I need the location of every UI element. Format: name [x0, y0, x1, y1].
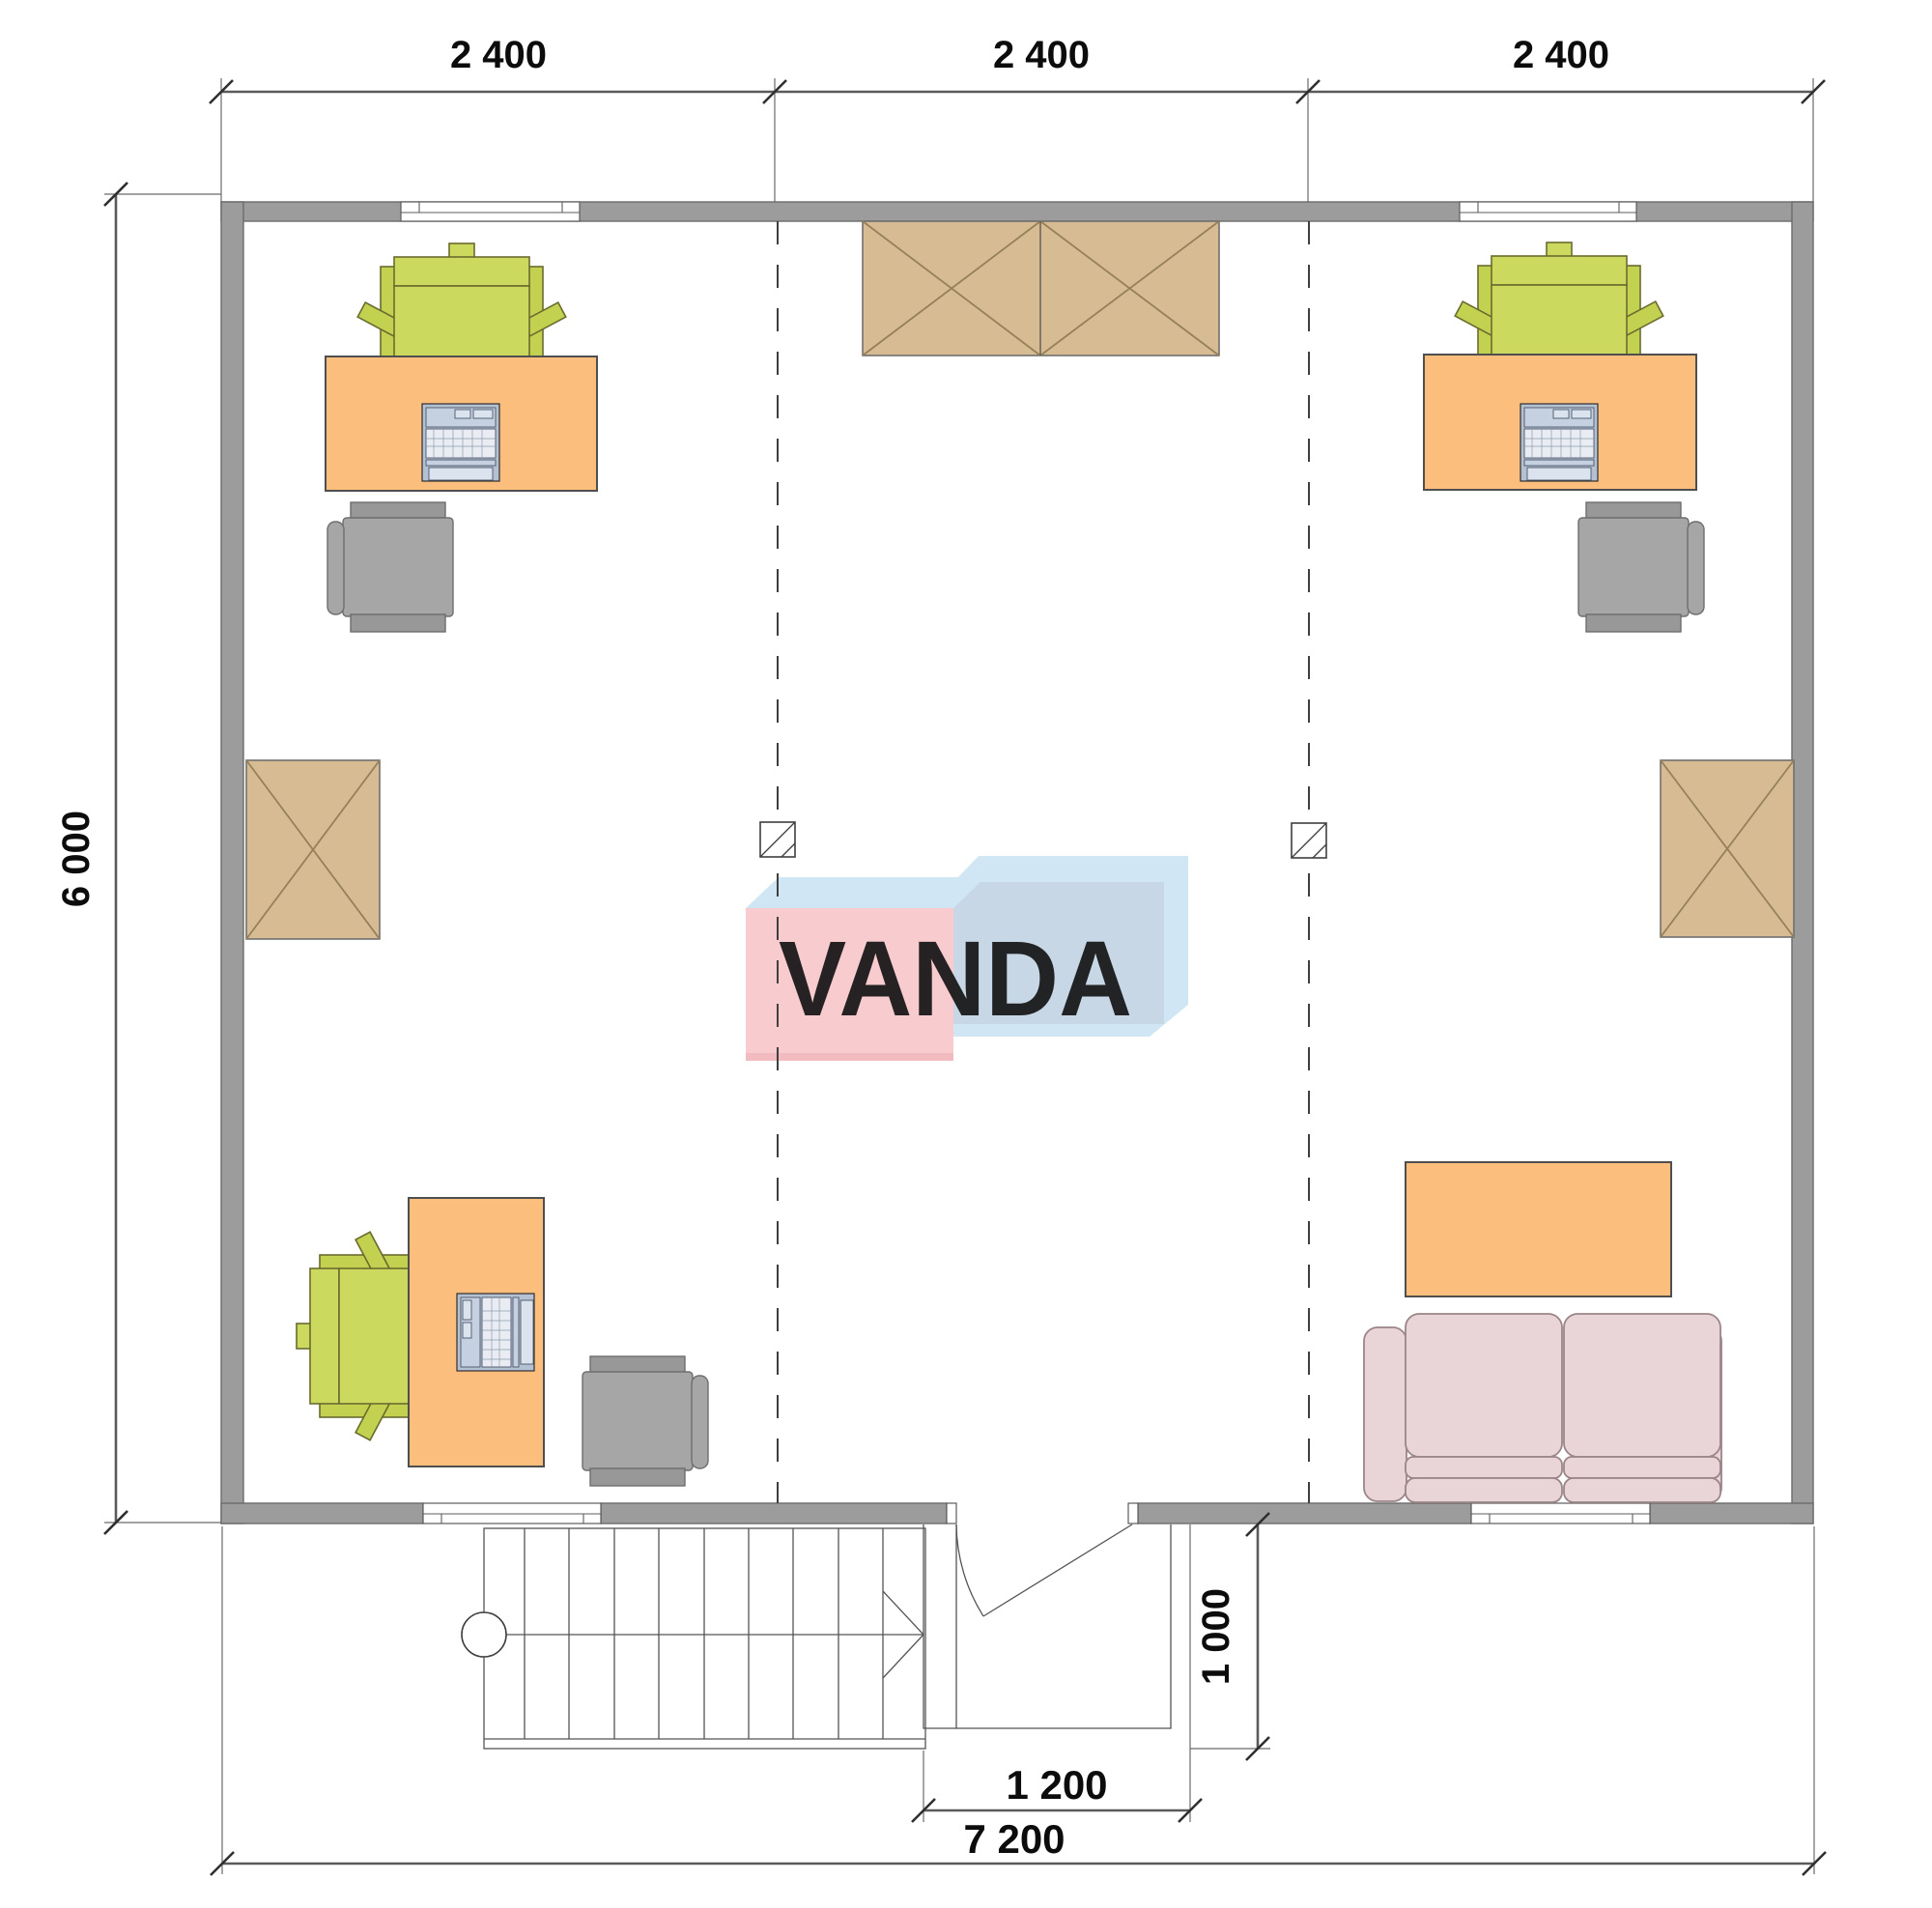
- door-swing-arc: [956, 1524, 983, 1616]
- chair-gray: [1578, 502, 1704, 632]
- wardrobe-right: [1661, 760, 1794, 937]
- stairs: [462, 1528, 925, 1749]
- dim-porch-depth: 1 000: [1195, 1588, 1237, 1685]
- stair-start-circle: [462, 1612, 506, 1657]
- wardrobe-left: [246, 760, 380, 939]
- dim-top-3: 2 400: [1513, 34, 1609, 76]
- wall-right: [1792, 202, 1813, 1524]
- workstation-top-right: [1424, 242, 1704, 632]
- dimension-entry-width: 1 200: [912, 1751, 1202, 1822]
- dim-top-2: 2 400: [993, 34, 1090, 76]
- watermark-logo: VANDA: [746, 856, 1188, 1061]
- dim-left-height: 6 000: [55, 811, 98, 907]
- workstation-bottom-left: [297, 1198, 708, 1486]
- sofa: [1364, 1314, 1721, 1502]
- dim-top-1: 2 400: [450, 34, 547, 76]
- porch: [923, 1524, 1171, 1728]
- door-jamb-left: [947, 1503, 956, 1524]
- door-jamb-right: [1128, 1503, 1138, 1524]
- wall-bottom-2: [601, 1503, 947, 1524]
- wall-bottom-4: [1650, 1503, 1813, 1524]
- wardrobe-double: [863, 221, 1219, 356]
- column-symbol-right: [1292, 823, 1326, 858]
- floor-plan-page: 2 400 2 400 2 400 6 000: [0, 0, 1932, 1908]
- lounge-area: [1364, 1162, 1721, 1502]
- window-top-left: [401, 202, 580, 221]
- dimension-left: 6 000: [55, 183, 221, 1534]
- window-bottom-left: [423, 1503, 601, 1524]
- window-top-right: [1460, 202, 1636, 221]
- workstation-top-left: [326, 243, 597, 632]
- entry-door: [947, 1503, 1138, 1616]
- wall-bottom-1: [221, 1503, 423, 1524]
- wall-left: [221, 202, 243, 1524]
- dim-entry-width: 1 200: [1006, 1762, 1107, 1808]
- window-bottom-right: [1471, 1503, 1650, 1524]
- door-leaf: [983, 1524, 1132, 1616]
- coffee-table: [1406, 1162, 1671, 1296]
- column-symbol-left: [760, 822, 795, 857]
- dimension-top: 2 400 2 400 2 400: [210, 34, 1825, 202]
- laptop: [1520, 404, 1598, 481]
- logo-box-pink-top: [746, 877, 985, 908]
- dimension-total-width: 7 200: [211, 1526, 1826, 1875]
- chair-gray: [582, 1356, 708, 1486]
- watermark-text: VANDA: [779, 920, 1132, 1039]
- dim-total-width: 7 200: [963, 1816, 1065, 1862]
- floor-plan-drawing: 2 400 2 400 2 400 6 000: [0, 0, 1932, 1908]
- dimension-porch-depth: 1 000: [1190, 1513, 1270, 1822]
- laptop: [457, 1294, 534, 1371]
- laptop: [422, 404, 499, 481]
- wall-bottom-3: [1138, 1503, 1471, 1524]
- chair-gray: [327, 502, 453, 632]
